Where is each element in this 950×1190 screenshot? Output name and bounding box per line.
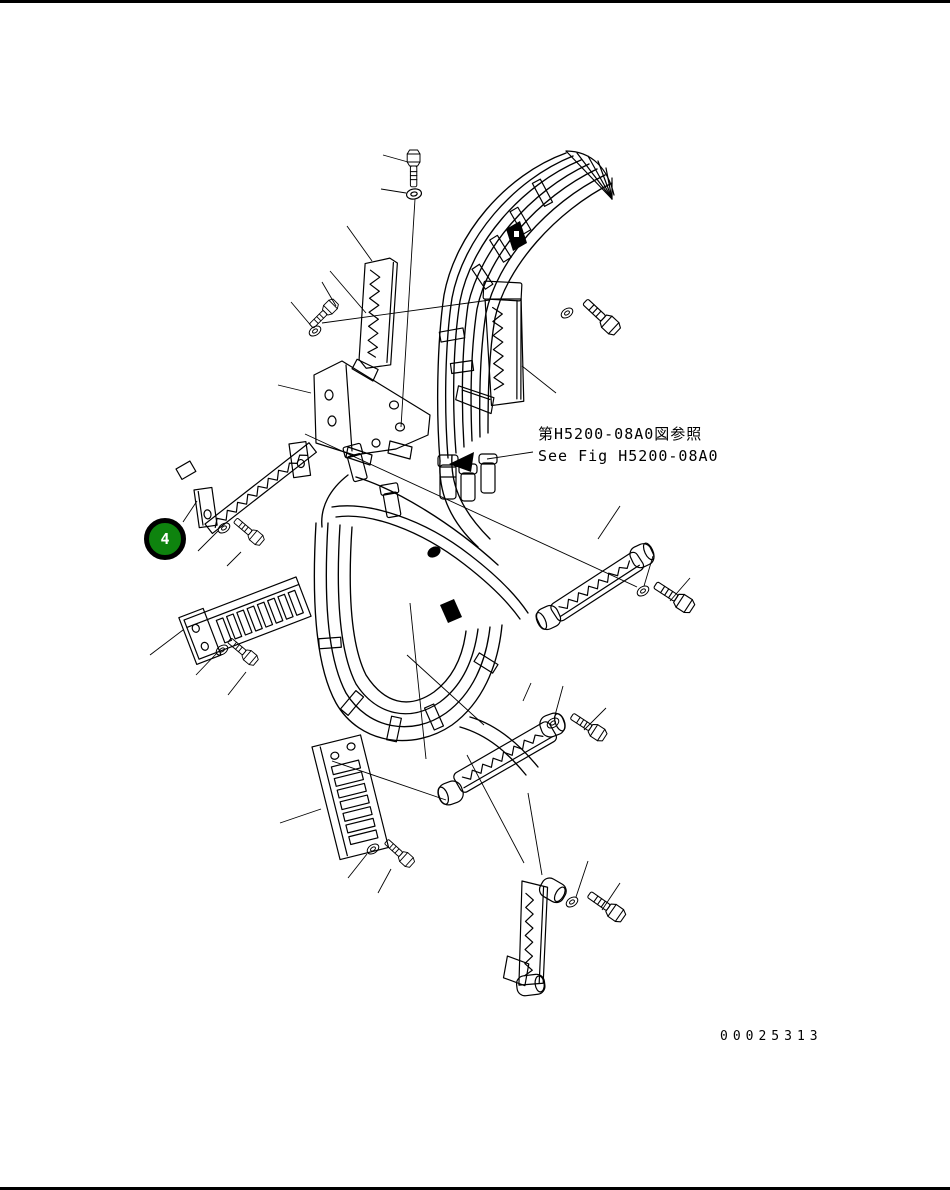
callout-balloon-4[interactable]: 4 — [144, 518, 186, 560]
hose-bundle-icon — [438, 151, 614, 461]
document-number: 00025313 — [720, 1029, 823, 1044]
serrated-clamp-icon — [455, 280, 530, 415]
serrated-clamp-icon — [176, 442, 316, 534]
mounting-bracket-icon — [314, 361, 430, 465]
serrated-clamp-icon — [428, 707, 575, 812]
serrated-clamp-icon — [530, 538, 661, 635]
hose-loop-icon — [314, 443, 538, 775]
ladder-clamp-plate-icon — [312, 735, 389, 860]
reference-note-english: See Fig H5200-08A0 — [538, 445, 719, 467]
reference-note: 第H5200-08A0図参照 See Fig H5200-08A0 — [538, 423, 719, 467]
diagram-page: 4 第H5200-08A0図参照 See Fig H5200-08A0 0002… — [0, 0, 950, 1190]
parts-diagram-drawing — [0, 3, 950, 1190]
balloon-number: 4 — [160, 530, 169, 548]
leader-lines — [150, 155, 690, 910]
serrated-clamp-icon — [502, 872, 570, 1000]
reference-note-japanese: 第H5200-08A0図参照 — [538, 423, 719, 445]
serrated-clamp-icon — [351, 255, 402, 382]
